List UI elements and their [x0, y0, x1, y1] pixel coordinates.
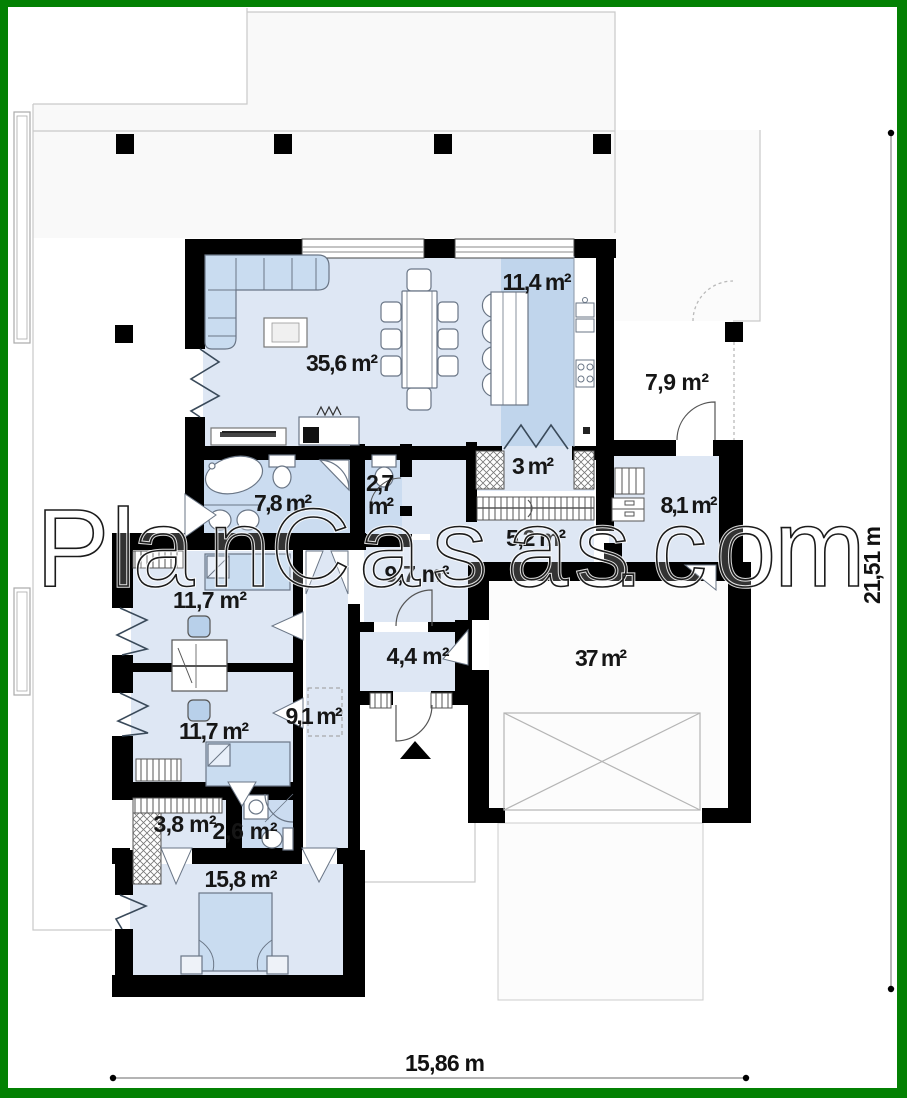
svg-text:15,86 m: 15,86 m	[405, 1050, 485, 1076]
svg-text:PlanCasas.com: PlanCasas.com	[36, 487, 866, 610]
svg-text:35,6 m²: 35,6 m²	[306, 350, 378, 376]
svg-text:15,8 m²: 15,8 m²	[205, 866, 278, 892]
svg-text:7,9 m²: 7,9 m²	[645, 369, 709, 395]
svg-text:2,6 m²: 2,6 m²	[213, 818, 278, 844]
svg-text:9,1 m²: 9,1 m²	[286, 703, 343, 729]
svg-text:37 m²: 37 m²	[575, 645, 627, 671]
svg-text:3 m²: 3 m²	[512, 453, 554, 479]
svg-text:4,4 m²: 4,4 m²	[387, 643, 450, 669]
svg-text:3,8 m²: 3,8 m²	[154, 811, 217, 837]
svg-text:11,7 m²: 11,7 m²	[179, 718, 249, 744]
svg-text:11,4 m²: 11,4 m²	[503, 269, 572, 295]
